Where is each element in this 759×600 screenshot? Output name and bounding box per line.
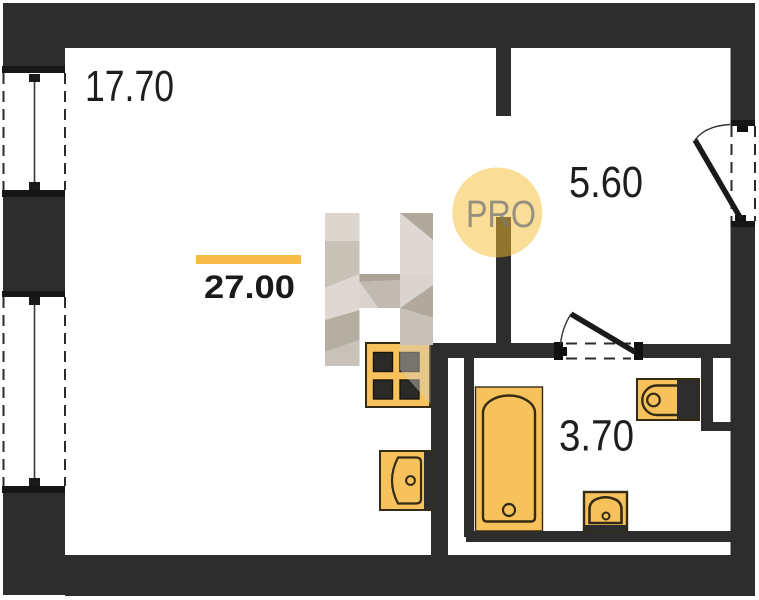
svg-text:17.70: 17.70 (85, 62, 174, 111)
svg-text:3.70: 3.70 (559, 412, 634, 461)
svg-text:5.60: 5.60 (569, 158, 643, 207)
svg-text:PRO: PRO (466, 194, 536, 236)
svg-text:27.00: 27.00 (204, 269, 295, 305)
